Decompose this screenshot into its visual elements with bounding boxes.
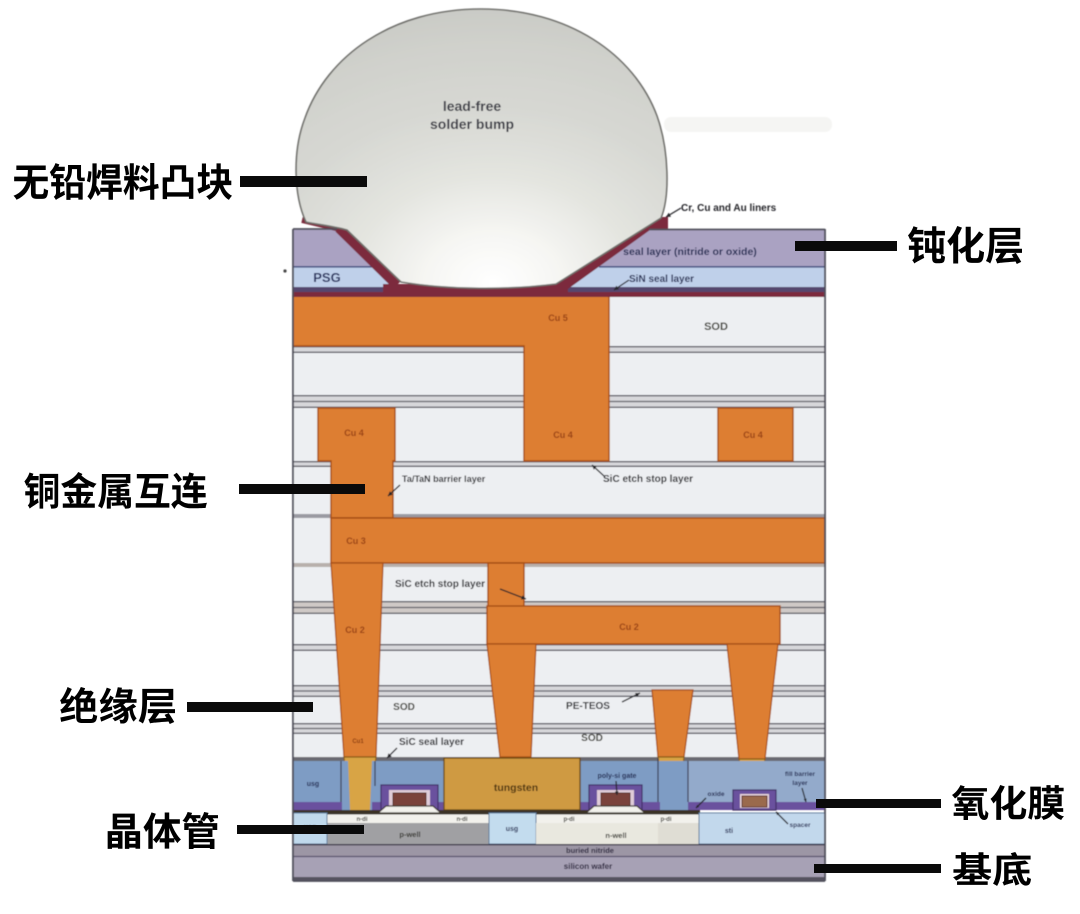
svg-text:buried nitride: buried nitride [566,846,614,855]
svg-text:Cu 5: Cu 5 [548,313,568,323]
svg-text:PE-TEOS: PE-TEOS [566,701,610,712]
svg-text:silicon wafer: silicon wafer [564,862,612,871]
svg-text:SiC etch stop layer: SiC etch stop layer [395,579,485,590]
svg-text:fill barrier: fill barrier [785,771,815,778]
svg-text:n-di: n-di [357,817,368,823]
svg-text:lead-free: lead-free [443,98,502,114]
svg-text:n-well: n-well [605,831,626,840]
svg-text:Cu1: Cu1 [352,739,364,745]
svg-text:solder bump: solder bump [430,116,514,132]
svg-text:Cu 4: Cu 4 [743,430,763,440]
svg-text:Ta/TaN barrier layer: Ta/TaN barrier layer [402,474,486,484]
svg-text:Cr, Cu and Au liners: Cr, Cu and Au liners [681,203,777,214]
svg-text:SOD: SOD [393,702,415,713]
svg-text:usg: usg [307,781,319,788]
svg-text:SiN seal layer: SiN seal layer [629,274,694,285]
svg-text:SiC seal layer: SiC seal layer [399,737,464,748]
svg-text:oxide: oxide [708,791,725,798]
svg-text:p-well: p-well [399,830,420,839]
svg-text:SOD: SOD [581,733,603,744]
svg-text:layer: layer [792,780,808,787]
svg-text:Cu 4: Cu 4 [553,430,573,440]
svg-text:p-di: p-di [564,817,575,823]
svg-text:poly-si gate: poly-si gate [598,773,637,780]
svg-text:Cu 2: Cu 2 [345,625,365,635]
svg-text:p-di: p-di [661,817,672,823]
svg-text:n-di: n-di [457,817,468,823]
svg-text:tungsten: tungsten [494,782,538,794]
svg-text:Cu 4: Cu 4 [344,428,364,438]
svg-text:Cu 3: Cu 3 [346,536,366,546]
svg-text:SOD: SOD [704,321,728,333]
svg-text:spacer: spacer [790,822,811,829]
svg-text:PSG: PSG [313,270,340,285]
svg-text:seal layer (nitride or oxide): seal layer (nitride or oxide) [623,246,757,258]
svg-text:sti: sti [725,828,733,835]
svg-text:usg: usg [506,826,518,833]
svg-text:Cu 2: Cu 2 [619,622,639,632]
svg-text:SiC etch stop layer: SiC etch stop layer [603,474,693,485]
